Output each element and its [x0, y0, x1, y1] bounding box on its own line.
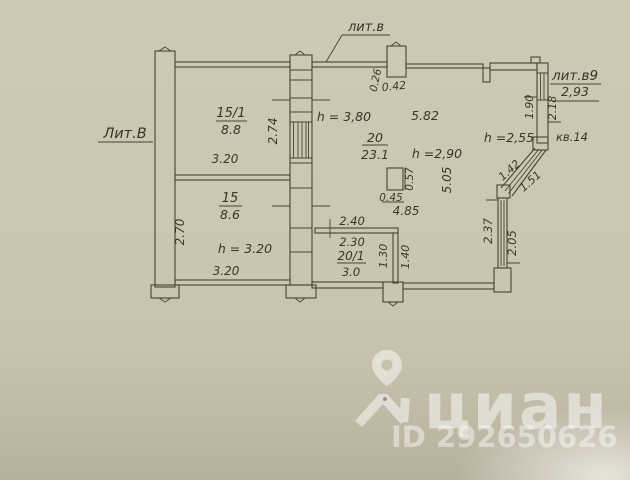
dim-20-1-w-in: 2.30 [339, 235, 365, 249]
room-20-1-area: 3.0 [342, 265, 360, 279]
roof-stub [399, 398, 410, 423]
dim-20-1-d-out: 1.40 [399, 245, 412, 270]
dim-column-h: 0.57 [404, 167, 416, 191]
dim-15-1-width: 3.20 [212, 152, 239, 166]
label-lit-v9: лит.в9 [551, 68, 598, 84]
dim-2-93: 2,93 [561, 84, 589, 99]
room-20-height: h =2,90 [412, 146, 462, 161]
room-15-number: 15 [222, 191, 239, 206]
room-20-height-left: h = 3,80 [317, 109, 371, 124]
dim-20-side: 5.05 [440, 167, 454, 194]
dim-bay-win1: 1.90 [523, 95, 536, 120]
room-15-height: h = 3.20 [218, 241, 272, 256]
dim-bay-side-out: 2.37 [481, 218, 495, 244]
floorplan-scan: Лит.В лит.в лит.в9 2,93 кв.14 15/1 8.8 3… [0, 0, 630, 480]
watermark-id: ID 292650626 [391, 420, 618, 454]
label-kv-14: кв.14 [556, 130, 588, 144]
room-20-area: 23.1 [361, 147, 389, 162]
dim-20-1-w-out: 2.40 [339, 214, 365, 228]
dim-bay-side-in: 2.05 [505, 230, 519, 256]
dim-flue-w2: 0.42 [381, 79, 407, 94]
bay-height: h =2,55 [484, 130, 534, 145]
room-15-1-number: 15/1 [216, 106, 245, 121]
floorplan-svg: Лит.В лит.в лит.в9 2,93 кв.14 15/1 8.8 3… [0, 0, 630, 480]
label-lit-v-left: Лит.В [102, 126, 146, 142]
room-15-1-area: 8.8 [221, 122, 241, 137]
dim-column-w: 0.45 [379, 192, 403, 204]
room-20-number: 20 [367, 130, 383, 145]
label-lit-v-top: лит.в [347, 20, 384, 35]
dim-15-1-depth: 2.74 [266, 118, 280, 145]
dim-15-width: 3.20 [213, 264, 240, 278]
room-15-area: 8.6 [220, 207, 240, 222]
dim-20-1-d-in: 1.30 [377, 244, 390, 269]
dim-bay-win2: 2.18 [546, 96, 559, 121]
dim-20-bottom: 4.85 [393, 204, 420, 218]
dim-15-depth: 2.70 [173, 218, 187, 245]
room-20-1-number: 20/1 [338, 249, 365, 263]
dim-20-top: 5.82 [411, 108, 439, 123]
